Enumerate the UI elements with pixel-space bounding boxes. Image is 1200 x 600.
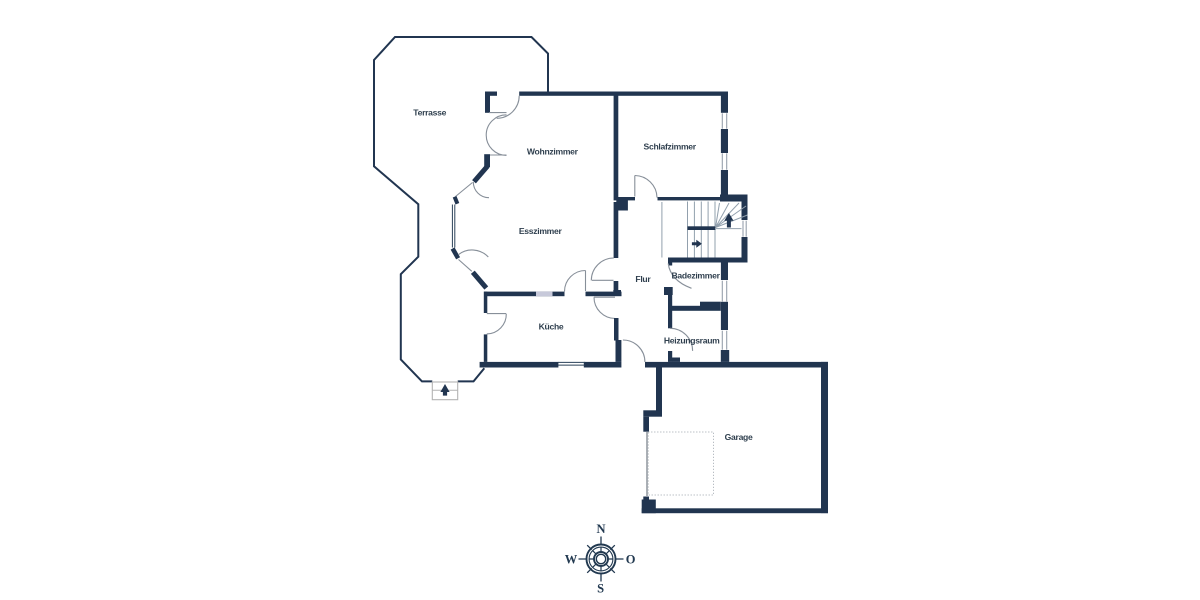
svg-text:Badezimmer: Badezimmer (672, 271, 721, 281)
svg-text:Wohnzimmer: Wohnzimmer (527, 146, 579, 156)
svg-text:N: N (596, 522, 605, 536)
svg-text:W: W (565, 553, 578, 567)
svg-text:Küche: Küche (539, 322, 564, 332)
svg-text:Schlafzimmer: Schlafzimmer (644, 141, 697, 151)
svg-text:Heizungsraum: Heizungsraum (664, 335, 720, 345)
svg-text:Flur: Flur (635, 274, 651, 284)
svg-text:O: O (626, 553, 636, 567)
svg-text:Terrasse: Terrasse (413, 107, 446, 117)
svg-text:Garage: Garage (725, 432, 753, 442)
svg-text:Esszimmer: Esszimmer (519, 226, 563, 236)
svg-text:S: S (597, 582, 604, 596)
